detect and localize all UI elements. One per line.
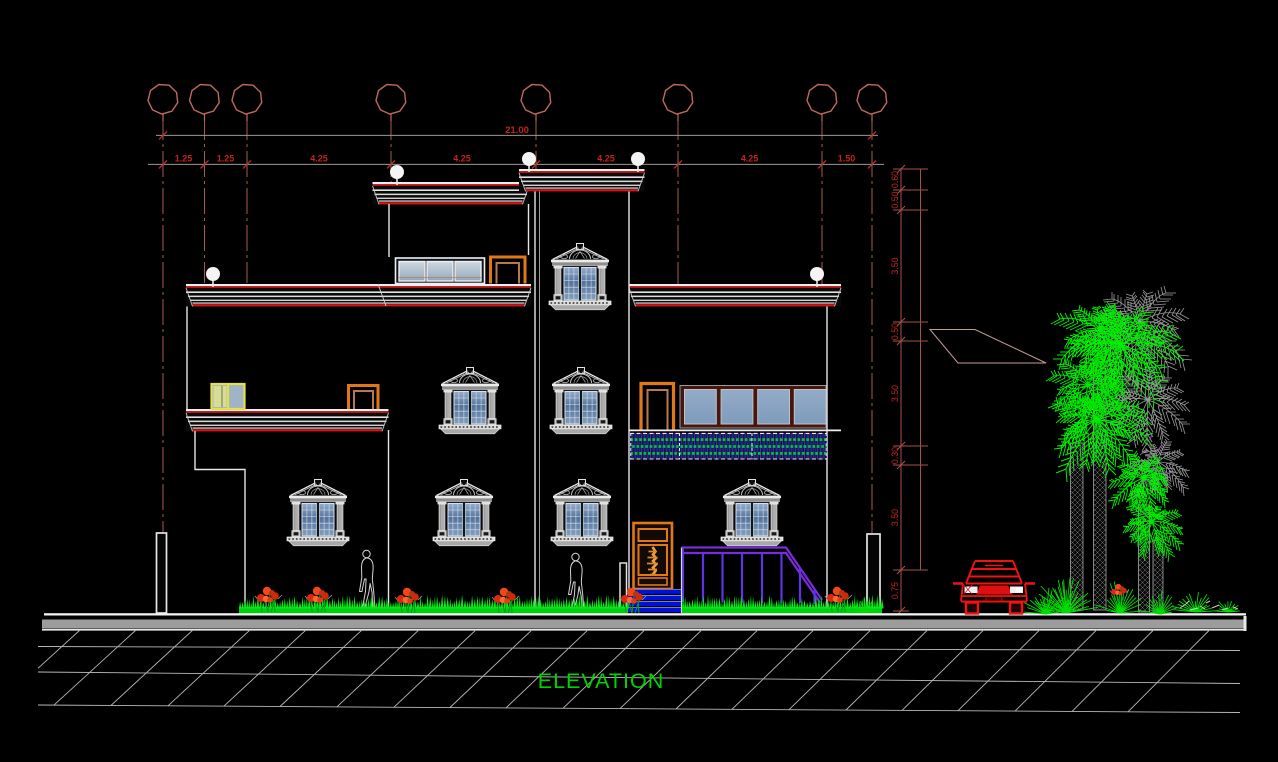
svg-text:1.50: 1.50 (838, 154, 856, 164)
svg-text:4.25: 4.25 (310, 154, 328, 164)
svg-text:4.25: 4.25 (453, 154, 471, 164)
svg-text:ELEVATION: ELEVATION (538, 669, 664, 693)
svg-text:0.50: 0.50 (890, 323, 900, 340)
svg-text:1.25: 1.25 (217, 154, 235, 164)
svg-text:3.50: 3.50 (890, 509, 900, 526)
svg-text:4.25: 4.25 (597, 154, 615, 164)
svg-text:1.25: 1.25 (175, 154, 193, 164)
svg-text:21.00: 21.00 (505, 125, 529, 136)
svg-text:3.50: 3.50 (890, 257, 900, 274)
svg-text:4.25: 4.25 (741, 154, 759, 164)
svg-text:0.60: 0.60 (890, 171, 900, 188)
svg-text:3.50: 3.50 (890, 385, 900, 402)
svg-text:0.75: 0.75 (890, 582, 900, 599)
svg-text:0.50: 0.50 (890, 191, 900, 208)
svg-text:0.30: 0.30 (890, 447, 900, 464)
